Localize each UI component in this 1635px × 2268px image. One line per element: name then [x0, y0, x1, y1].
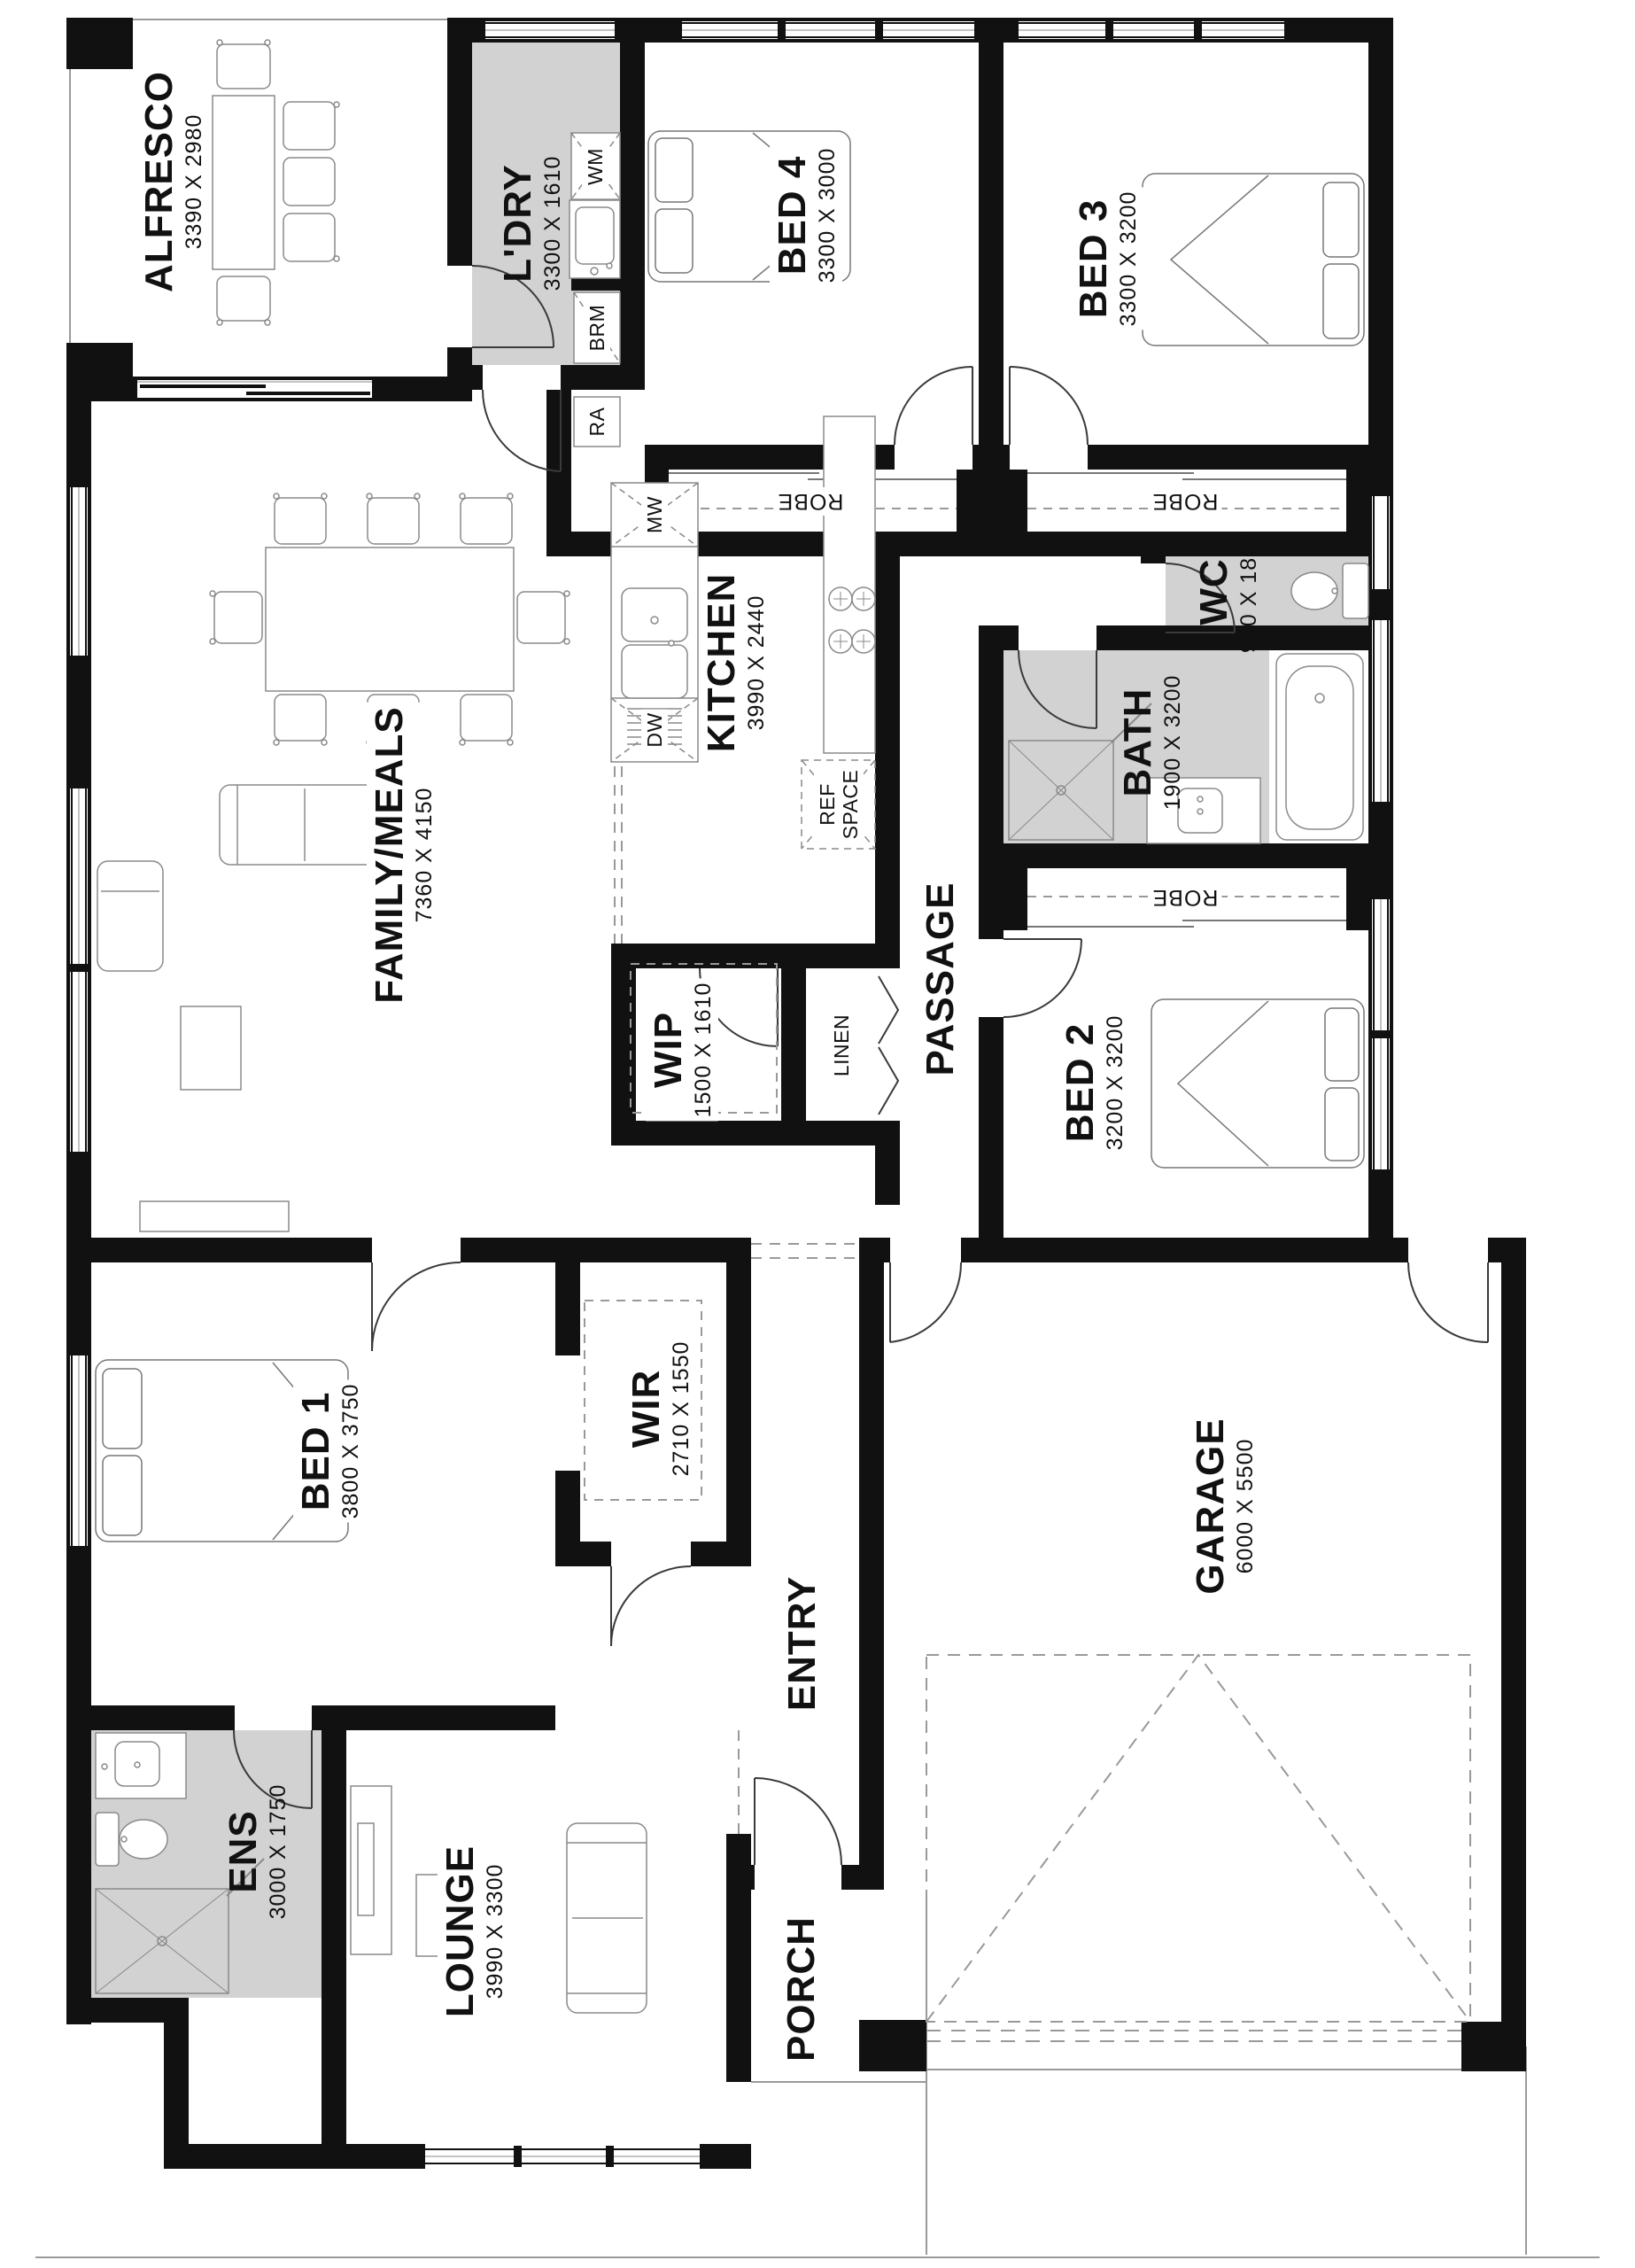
- lounge-sofa: [567, 1823, 647, 2013]
- bed4-door: [895, 367, 972, 445]
- tv-console: [140, 1201, 289, 1231]
- sofa: [220, 785, 390, 865]
- floor-plan-canvas: ALFRESCO3390 X 2980 L'DRY3300 X 1610 BED…: [0, 0, 1635, 2268]
- fridge-space: [802, 760, 875, 849]
- armchair: [97, 861, 163, 971]
- broom-cupboard: [574, 292, 620, 363]
- bed3-bed: [1143, 174, 1364, 346]
- bed1-bed: [96, 1360, 348, 1542]
- bed4-robe: [669, 473, 957, 509]
- bed2-door: [1003, 939, 1081, 1017]
- tv-unit: [351, 1786, 391, 1954]
- entry-garage-door: [890, 1262, 961, 1342]
- bed1-door: [372, 1262, 461, 1351]
- coffee-table: [181, 1006, 241, 1090]
- dining-table: [266, 548, 514, 691]
- front-door: [755, 1778, 841, 1865]
- washing-machine-space: [571, 133, 620, 199]
- linen-bifold-doors: [879, 976, 898, 1115]
- benchtop: [824, 416, 875, 753]
- garage-side-door: [1408, 1262, 1488, 1342]
- return-air-nook: [574, 397, 620, 447]
- bath-vanity: [1147, 778, 1260, 843]
- wir-door: [611, 1566, 691, 1646]
- bed4-bed: [648, 131, 850, 282]
- bed3-door: [1010, 367, 1088, 445]
- laundry-trough: [570, 200, 620, 278]
- bed3-robe: [1027, 473, 1346, 509]
- ens-vanity: [96, 1733, 186, 1798]
- alfresco-dining-set: [148, 40, 339, 325]
- wip-shelves: [631, 964, 777, 1113]
- bed2-robe: [1027, 897, 1346, 927]
- floor-plan-drawing: [0, 0, 1635, 2268]
- bed2-bed: [1151, 999, 1364, 1168]
- lounge-furniture: [351, 1786, 647, 2013]
- wir-shelves: [585, 1301, 701, 1500]
- family-furniture: [97, 493, 570, 1231]
- bathtub: [1276, 654, 1363, 840]
- garage-door: [926, 2031, 1461, 2041]
- garage-ceiling-marks: [926, 1655, 1470, 2022]
- wip-door: [700, 968, 778, 1046]
- sliding-door: [137, 380, 372, 398]
- lounge-coffee-table: [416, 1875, 468, 1956]
